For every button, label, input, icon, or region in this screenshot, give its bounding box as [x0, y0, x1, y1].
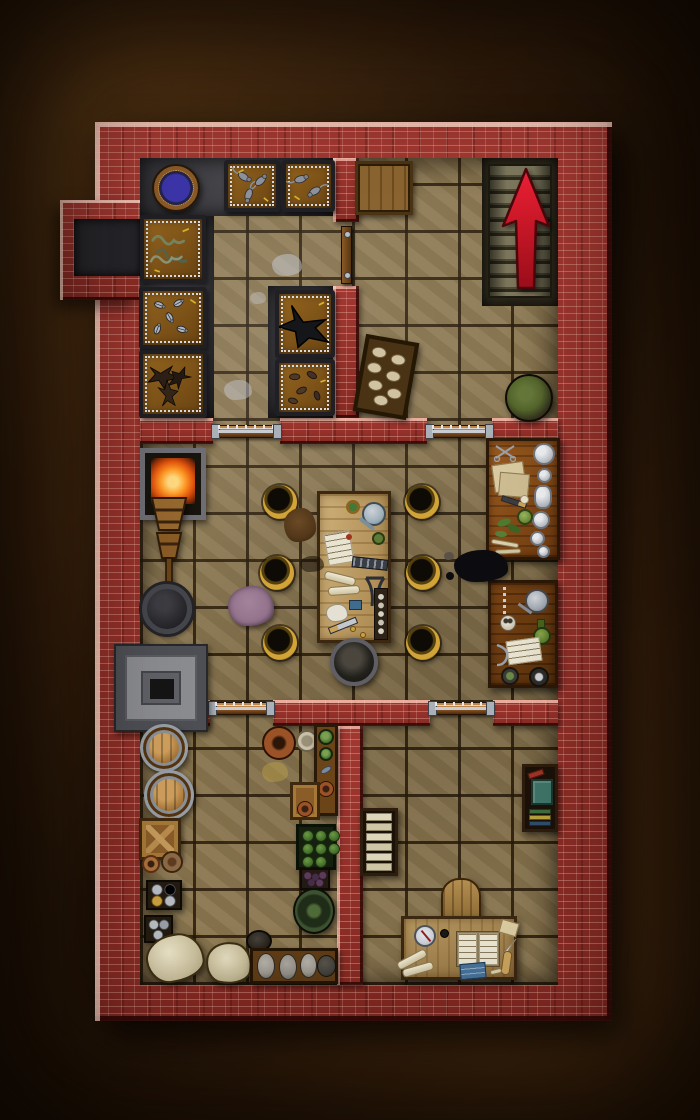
- splatter-stain: [224, 380, 252, 400]
- crucible: [529, 667, 549, 687]
- grey-sack: [279, 954, 297, 980]
- floor-brazier: [263, 626, 297, 660]
- coin: [350, 626, 356, 632]
- bandage-roll: [323, 570, 356, 586]
- work-table: [317, 491, 391, 643]
- studded-tool-strip: [352, 556, 389, 571]
- dark-keg: [317, 955, 336, 977]
- pebble: [444, 552, 454, 560]
- book-page-right: [479, 933, 498, 965]
- west-alcove-niche: [74, 219, 142, 276]
- rust-bowl: [318, 781, 334, 797]
- jar-box: [146, 880, 182, 910]
- cage-raven: [275, 290, 335, 358]
- rust-bowl: [297, 801, 313, 817]
- door-upper-right: [427, 425, 492, 438]
- gem-stand: [346, 500, 360, 514]
- teal-tome: [531, 779, 553, 805]
- compass-needle: [421, 930, 432, 942]
- berry-box: [300, 868, 330, 890]
- glass-jar: [530, 531, 545, 546]
- glass-jar: [537, 468, 552, 483]
- bookshelf-pale-books: [360, 808, 398, 876]
- fish: [319, 764, 332, 775]
- blue-chart: [459, 962, 486, 980]
- green-bowl: [318, 729, 334, 745]
- herb-leaf: [506, 522, 522, 534]
- glass-bottle: [534, 485, 552, 509]
- blue-book: [529, 821, 551, 826]
- coal-grate: [142, 584, 192, 634]
- cabbage-crate: [296, 824, 336, 870]
- floor-stain: [300, 556, 324, 572]
- battle-map: [0, 0, 700, 1120]
- small-crate: [290, 782, 320, 820]
- floor-brazier: [260, 556, 294, 590]
- white-cloth: [326, 604, 348, 622]
- floor-brazier: [406, 626, 440, 660]
- wooden-trapdoor: [355, 161, 413, 215]
- mortar-bowl: [501, 667, 519, 685]
- herb-leaf: [495, 530, 507, 537]
- glass-jar: [533, 443, 555, 465]
- door-iron-spine: [218, 430, 275, 433]
- blue-box: [349, 600, 362, 610]
- green-flask: [517, 509, 533, 525]
- ritual-blue-disc: [152, 164, 200, 212]
- scissors: [494, 444, 516, 462]
- candle: [520, 495, 529, 504]
- fur-scrap: [284, 508, 316, 542]
- compass: [414, 925, 436, 947]
- floor-brazier: [405, 485, 439, 519]
- green-jar: [372, 532, 385, 545]
- book-page-left: [458, 933, 477, 965]
- small-plate: [161, 851, 183, 873]
- bone: [490, 968, 503, 976]
- door-iron-spine: [215, 707, 269, 710]
- wax-seal: [346, 534, 352, 540]
- stone-oven-inner: [141, 671, 181, 705]
- cage-snakes: [140, 215, 206, 283]
- bookshelf-tomes: [522, 764, 558, 832]
- barrel: [140, 724, 188, 772]
- bandage-roll: [328, 585, 361, 596]
- bellows: [144, 496, 194, 588]
- door-pen-gate: [341, 226, 352, 284]
- cage-mice: [275, 359, 335, 416]
- moss-basket: [505, 374, 553, 422]
- stone-oven-hole: [150, 679, 174, 699]
- skull: [500, 615, 516, 631]
- green-dish: [293, 888, 335, 934]
- interior-wall-upper-mid: [280, 418, 427, 444]
- door-lower-left: [210, 702, 273, 715]
- iron-cauldron: [330, 638, 378, 686]
- small-plate: [142, 855, 160, 873]
- glass-jar: [532, 511, 550, 529]
- red-book: [527, 769, 544, 780]
- ink-pot: [440, 929, 449, 938]
- coin: [360, 632, 366, 638]
- green-book: [529, 809, 551, 814]
- splatter-stain: [250, 292, 266, 304]
- cage-rats-2: [282, 160, 335, 212]
- copper-coil: [493, 643, 511, 667]
- yellow-book: [529, 815, 551, 820]
- splatter-stain: [272, 254, 302, 276]
- door-iron-spine: [432, 430, 487, 433]
- tan-scroll: [500, 950, 512, 975]
- ink-spill: [454, 550, 508, 582]
- glass-jar: [537, 545, 550, 558]
- bone: [491, 539, 519, 549]
- door-upper-left: [213, 425, 280, 438]
- cage-dark-birds: [139, 350, 207, 418]
- writing-desk: [401, 916, 517, 980]
- interior-wall-upper-left: [140, 418, 213, 444]
- hanging-chain: [503, 587, 506, 615]
- door-lower-right: [430, 702, 493, 715]
- alchemy-bench-glassware: [486, 438, 560, 560]
- interior-wall-lower-mid: [273, 700, 430, 726]
- green-bowl: [319, 747, 333, 761]
- loose-paper: [498, 919, 519, 937]
- stone-oven-rim: [125, 655, 197, 721]
- cage-rats-1: [224, 160, 280, 212]
- sack-trough: [250, 948, 338, 984]
- red-clay-pot: [262, 726, 296, 760]
- hinge-icon: [344, 231, 351, 238]
- barrel: [144, 770, 194, 820]
- ink-drip: [446, 572, 454, 580]
- scroll-sheet: [505, 637, 542, 665]
- tube-rack: [374, 588, 388, 640]
- purple-rag: [228, 586, 274, 626]
- door-iron-spine: [435, 707, 489, 710]
- exit-up-arrow: [496, 166, 556, 296]
- grey-sack: [300, 953, 317, 978]
- hinge-icon: [344, 272, 351, 279]
- grey-sack: [257, 953, 275, 979]
- floor-brazier: [406, 556, 440, 590]
- alchemy-bench-alembic: [488, 580, 558, 688]
- interior-wall-lower-right: [493, 700, 558, 726]
- cage-beetles: [139, 287, 207, 349]
- spill-stain: [262, 762, 288, 782]
- stone-oven: [114, 644, 208, 732]
